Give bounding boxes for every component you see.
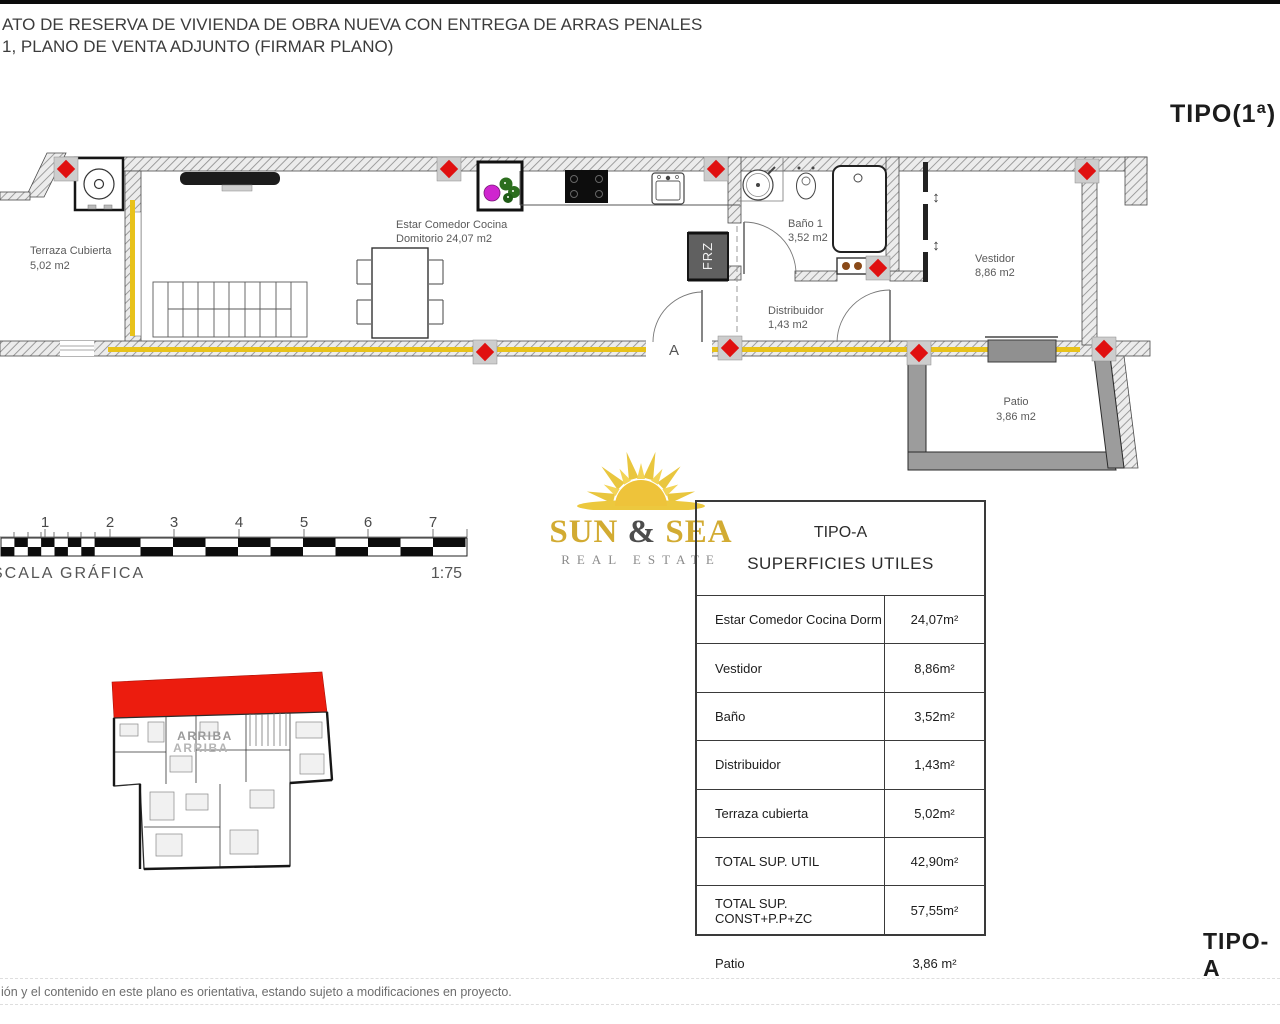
surfaces-table: TIPO-A SUPERFICIES UTILES Estar Comedor …: [695, 500, 986, 936]
svg-text:6: 6: [364, 514, 372, 531]
freezer-label: FRZ: [700, 242, 715, 270]
scale-ticks: [0, 529, 467, 537]
table-row: Baño3,52m²: [697, 693, 984, 741]
kitchen-alcove: [478, 162, 522, 210]
plant-pot-icon: [484, 185, 500, 201]
svg-text:2: 2: [106, 514, 114, 531]
svg-text:5: 5: [300, 514, 308, 531]
disclaimer-text: ión y el contenido en este plano es orie…: [1, 985, 512, 999]
row-value: 24,07m²: [885, 596, 984, 643]
room-area-patio: 3,86 m2: [996, 411, 1036, 423]
unit-type-label-bottom: TIPO-A: [1203, 928, 1280, 982]
scale-ratio: 1:75: [431, 565, 462, 582]
wardrobe-arrow-icon: ↕: [932, 237, 940, 254]
surfaces-table-title: TIPO-A: [814, 524, 867, 542]
survey-marker-icon: [473, 340, 497, 364]
logo-ampersand: &: [628, 514, 657, 550]
row-value: 57,55m²: [885, 886, 984, 934]
unit-type-label-top: TIPO(1ª): [1170, 100, 1276, 129]
room-label-estar: Estar Comedor Cocina: [396, 219, 508, 231]
row-label: Terraza cubierta: [697, 790, 885, 837]
row-label: Patio: [695, 956, 883, 971]
surfaces-table-subtitle: SUPERFICIES UTILES: [747, 554, 934, 574]
survey-marker-icon: [907, 341, 931, 365]
row-value: 42,90m²: [885, 838, 984, 885]
table-row: TOTAL SUP. CONST+P.P+ZC57,55m²: [697, 886, 984, 934]
survey-marker-icon: [54, 157, 78, 181]
survey-marker-icon: [437, 157, 461, 181]
svg-text:1: 1: [41, 514, 49, 531]
towel-rack-icon: [837, 258, 868, 274]
freezer-icon: FRZ: [688, 233, 728, 280]
room-label-patio: Patio: [1003, 396, 1028, 408]
room-area-vestidor: 8,86 m2: [975, 267, 1015, 279]
floor-plan-drawing: FRZ: [0, 148, 1160, 480]
scale-caption: SCALA GRÁFICA: [0, 563, 145, 582]
door-arc: [653, 292, 702, 342]
row-value: 3,86 m²: [883, 956, 986, 971]
scale-checker-bar: [1, 538, 467, 556]
row-label: TOTAL SUP. CONST+P.P+ZC: [697, 886, 885, 934]
wardrobe-arrow-icon: ↕: [932, 189, 940, 206]
room-label-terraza: Terraza Cubierta: [30, 245, 112, 257]
room-area-terraza: 5,02 m2: [30, 260, 70, 272]
room-label-bano: Baño 1: [788, 218, 823, 230]
row-value: 8,86m²: [885, 644, 984, 691]
row-label: Estar Comedor Cocina Dorm: [697, 596, 885, 643]
table-row: Terraza cubierta5,02m²: [697, 790, 984, 838]
row-value: 1,43m²: [885, 741, 984, 788]
table-row: TOTAL SUP. UTIL42,90m²: [697, 838, 984, 886]
survey-marker-icon: [1075, 159, 1099, 183]
bathroom-fixtures: [737, 158, 886, 274]
bathroom-sink-icon: [743, 167, 775, 200]
patio-surface-row: Patio 3,86 m²: [695, 948, 986, 978]
svg-text:3: 3: [170, 514, 178, 531]
window-block: [985, 337, 1058, 362]
room-label-distribuidor: Distribuidor: [768, 305, 824, 317]
graphic-scale-bar: 1 2 3 4 5 6 7: [0, 505, 490, 587]
wardrobe-partition: ↕ ↕: [923, 162, 940, 282]
contract-title-line1: ATO DE RESERVA DE VIVIENDA DE OBRA NUEVA…: [2, 14, 702, 36]
stove-icon: [565, 170, 608, 203]
dining-table: [357, 248, 443, 338]
survey-marker-icon: [1092, 337, 1116, 361]
logo-word-sun: SUN: [549, 514, 618, 550]
bathtub-icon: [833, 166, 886, 252]
entrance-door-label: A: [669, 342, 679, 359]
room-area-distribuidor: 1,43 m2: [768, 319, 808, 331]
row-value: 3,52m²: [885, 693, 984, 740]
surfaces-table-header: TIPO-A SUPERFICIES UTILES: [697, 502, 984, 596]
room-area-estar: Domitorio 24,07 m2: [396, 233, 492, 245]
room-area-bano: 3,52 m2: [788, 232, 828, 244]
door-arc: [837, 290, 890, 342]
kitchen-sink-icon: [652, 173, 684, 204]
table-row: Estar Comedor Cocina Dorm24,07m²: [697, 596, 984, 644]
room-label-vestidor: Vestidor: [975, 253, 1015, 265]
row-label: TOTAL SUP. UTIL: [697, 838, 885, 885]
contract-title: ATO DE RESERVA DE VIVIENDA DE OBRA NUEVA…: [2, 14, 702, 58]
row-label: Baño: [697, 693, 885, 740]
plan-sheet: ATO DE RESERVA DE VIVIENDA DE OBRA NUEVA…: [0, 0, 1280, 1024]
divider-line: [0, 978, 1280, 979]
highlighted-unit-area: [112, 672, 327, 718]
key-plan-overview: ARRIBA ARRIBA: [100, 662, 352, 880]
survey-marker-icon: [718, 336, 742, 360]
svg-text:4: 4: [235, 514, 243, 531]
row-value: 5,02m²: [885, 790, 984, 837]
svg-text:7: 7: [429, 514, 437, 531]
divider-line: [0, 1004, 1280, 1005]
table-row: Distribuidor1,43m²: [697, 741, 984, 789]
survey-marker-icon: [866, 256, 890, 280]
stairs-direction-label: ARRIBA: [173, 741, 229, 755]
scale-numbers: 1 2 3 4 5 6 7: [41, 514, 437, 531]
survey-marker-icon: [704, 157, 728, 181]
top-black-bar: [0, 0, 1280, 4]
ceiling-lamp-icon: [180, 172, 280, 191]
sofa-bed: [153, 282, 307, 337]
contract-title-line2: 1, PLANO DE VENTA ADJUNTO (FIRMAR PLANO): [2, 36, 702, 58]
row-label: Distribuidor: [697, 741, 885, 788]
row-label: Vestidor: [697, 644, 885, 691]
table-row: Vestidor8,86m²: [697, 644, 984, 692]
